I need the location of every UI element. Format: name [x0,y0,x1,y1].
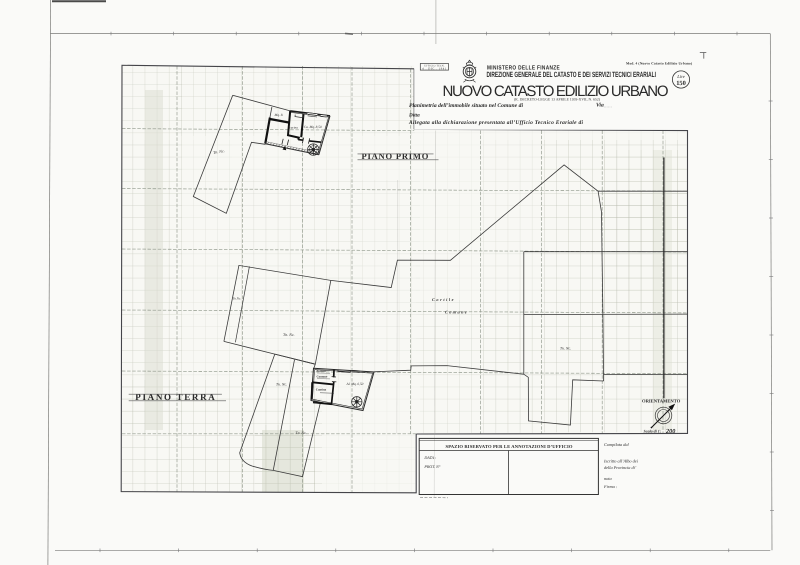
svg-text:150: 150 [676,80,686,87]
svg-text:Mq. 8.: Mq. 8. [274,113,284,117]
svg-text:200: 200 [665,428,675,435]
svg-text:Allegata alla dichiarazione pr: Allegata alla dichiarazione presentata a… [408,120,583,126]
svg-text:Ca. Mq. 8,50: Ca. Mq. 8,50 [304,125,322,129]
svg-text:Portico: Portico [317,369,327,373]
svg-text:Al. Mq. 6,50: Al. Mq. 6,50 [346,382,364,386]
svg-text:DIREZIONE GENERALE DEL CATASTO: DIREZIONE GENERALE DEL CATASTO E DEI SER… [487,70,657,79]
svg-text:Firma :: Firma : [603,484,618,489]
svg-text:SPAZIO RISERVATO PER LE ANNOTA: SPAZIO RISERVATO PER LE ANNOTAZIONI D’UF… [446,444,573,449]
svg-text:nota: nota [604,476,612,481]
svg-text:DATA :: DATA : [423,455,436,460]
svg-text:4 . DIC . 1941: 4 . DIC . 1941 [422,68,446,71]
svg-text:Cantina: Cantina [316,387,327,391]
svg-text:(R. DECRETO-LEGGE 13 APRILE 19: (R. DECRETO-LEGGE 13 APRILE 1939-XVII, N… [514,97,601,101]
svg-text:Cortile: Cortile [432,297,455,302]
svg-text:Ditta: Ditta [408,113,420,119]
svg-text:Compilata dal: Compilata dal [604,442,630,447]
svg-text:Via: Via [596,102,604,108]
svg-text:Lire: Lire [676,74,685,79]
svg-text:Tn. Nc.: Tn. Nc. [276,382,287,386]
svg-text:cucina: cucina [289,125,298,129]
svg-text:Planimetria dell’immobile situ: Planimetria dell’immobile situato nel Co… [409,103,523,109]
svg-text:Scala di 1:: Scala di 1: [644,428,662,433]
svg-text:Tn. Nc.: Tn. Nc. [296,431,307,435]
svg-text:Tn. Nc.: Tn. Nc. [560,347,571,351]
svg-text:Tn. Nc.: Tn. Nc. [283,332,295,337]
svg-text:PROT. N°: PROT. N° [423,464,440,469]
svg-text:Tn.Nc.: Tn.Nc. [233,297,242,301]
svg-text:ORIENTAMENTO: ORIENTAMENTO [642,399,681,404]
svg-text:Iscritto all’Albo dei: Iscritto all’Albo dei [603,459,639,464]
svg-text:della Provincia di’: della Provincia di’ [604,465,637,470]
svg-text:Mod. 4 (Nuovo Catasto Edilizio: Mod. 4 (Nuovo Catasto Edilizio Urbano) [626,62,693,66]
svg-text:Comune: Comune [445,309,468,314]
svg-text:PIANO PRIMO: PIANO PRIMO [362,151,431,161]
svg-text:Comune: Comune [317,374,329,378]
